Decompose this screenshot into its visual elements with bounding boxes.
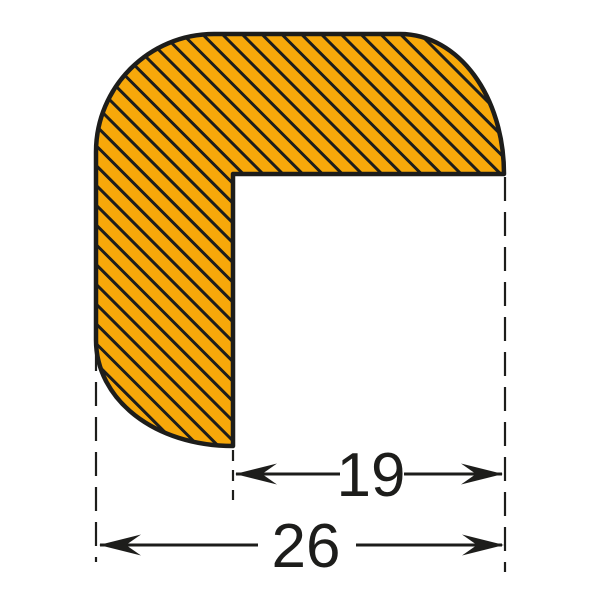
dimension-label-19: 19 <box>337 441 406 510</box>
profile-cross-section-diagram: 19 26 <box>0 0 600 600</box>
dimension-label-26: 26 <box>272 512 341 581</box>
diagram-canvas: 19 26 <box>0 0 600 600</box>
